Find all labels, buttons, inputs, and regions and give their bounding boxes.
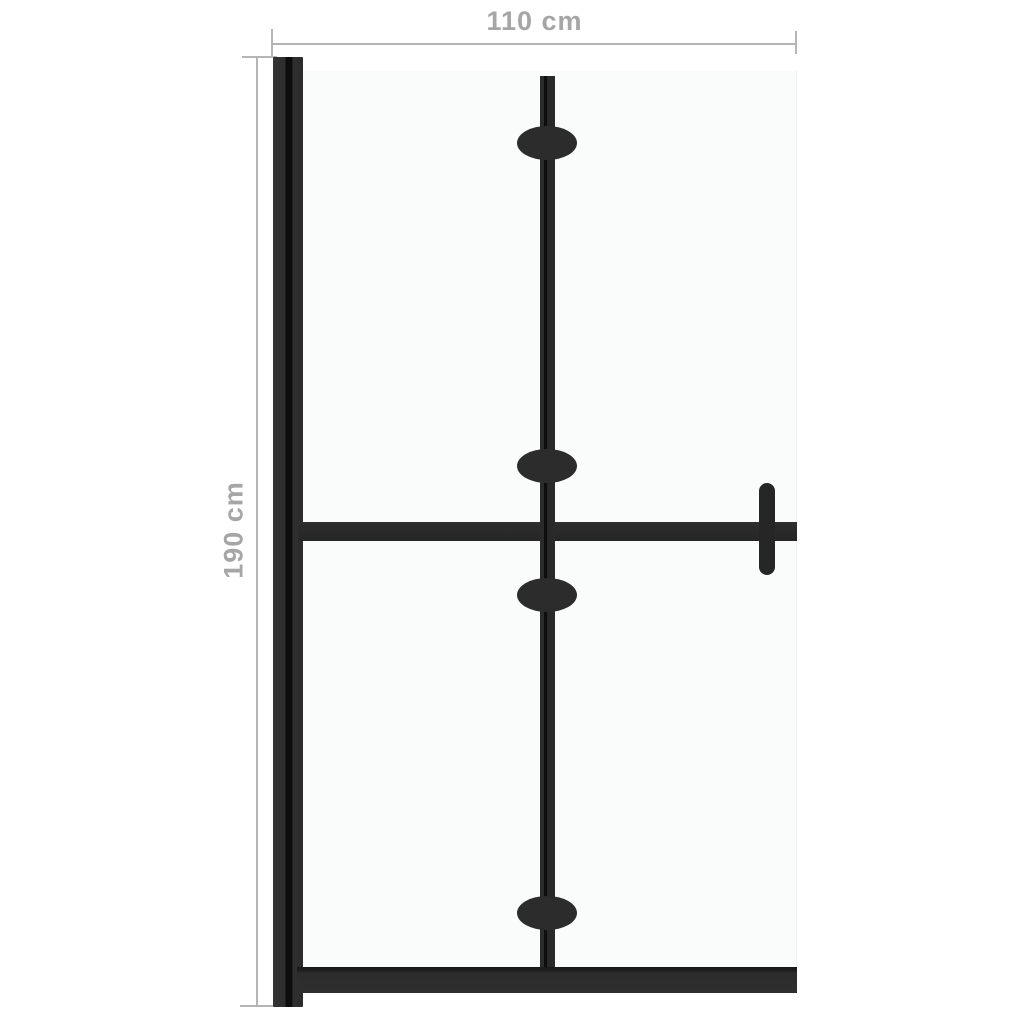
- height-dimension-tick-top: [242, 56, 277, 58]
- side-handle: [759, 483, 775, 575]
- hinge-oval-4: [517, 896, 577, 930]
- hinge-oval-1: [517, 126, 577, 160]
- height-dimension-tick-bottom: [240, 1005, 277, 1007]
- hinge-oval-3: [517, 578, 577, 612]
- height-dimension-label: 190 cm: [219, 481, 250, 579]
- width-dimension-label: 110 cm: [272, 6, 797, 37]
- product-dimension-diagram: 110 cm 190 cm: [0, 0, 1024, 1024]
- width-dimension-line: [272, 43, 797, 45]
- hinge-oval-2: [517, 449, 577, 483]
- width-dimension-tick-right: [795, 31, 797, 54]
- height-dimension-line: [256, 57, 258, 1007]
- width-dimension-tick-left: [271, 29, 273, 57]
- fold-line: [540, 76, 555, 967]
- bottom-rail: [297, 967, 797, 993]
